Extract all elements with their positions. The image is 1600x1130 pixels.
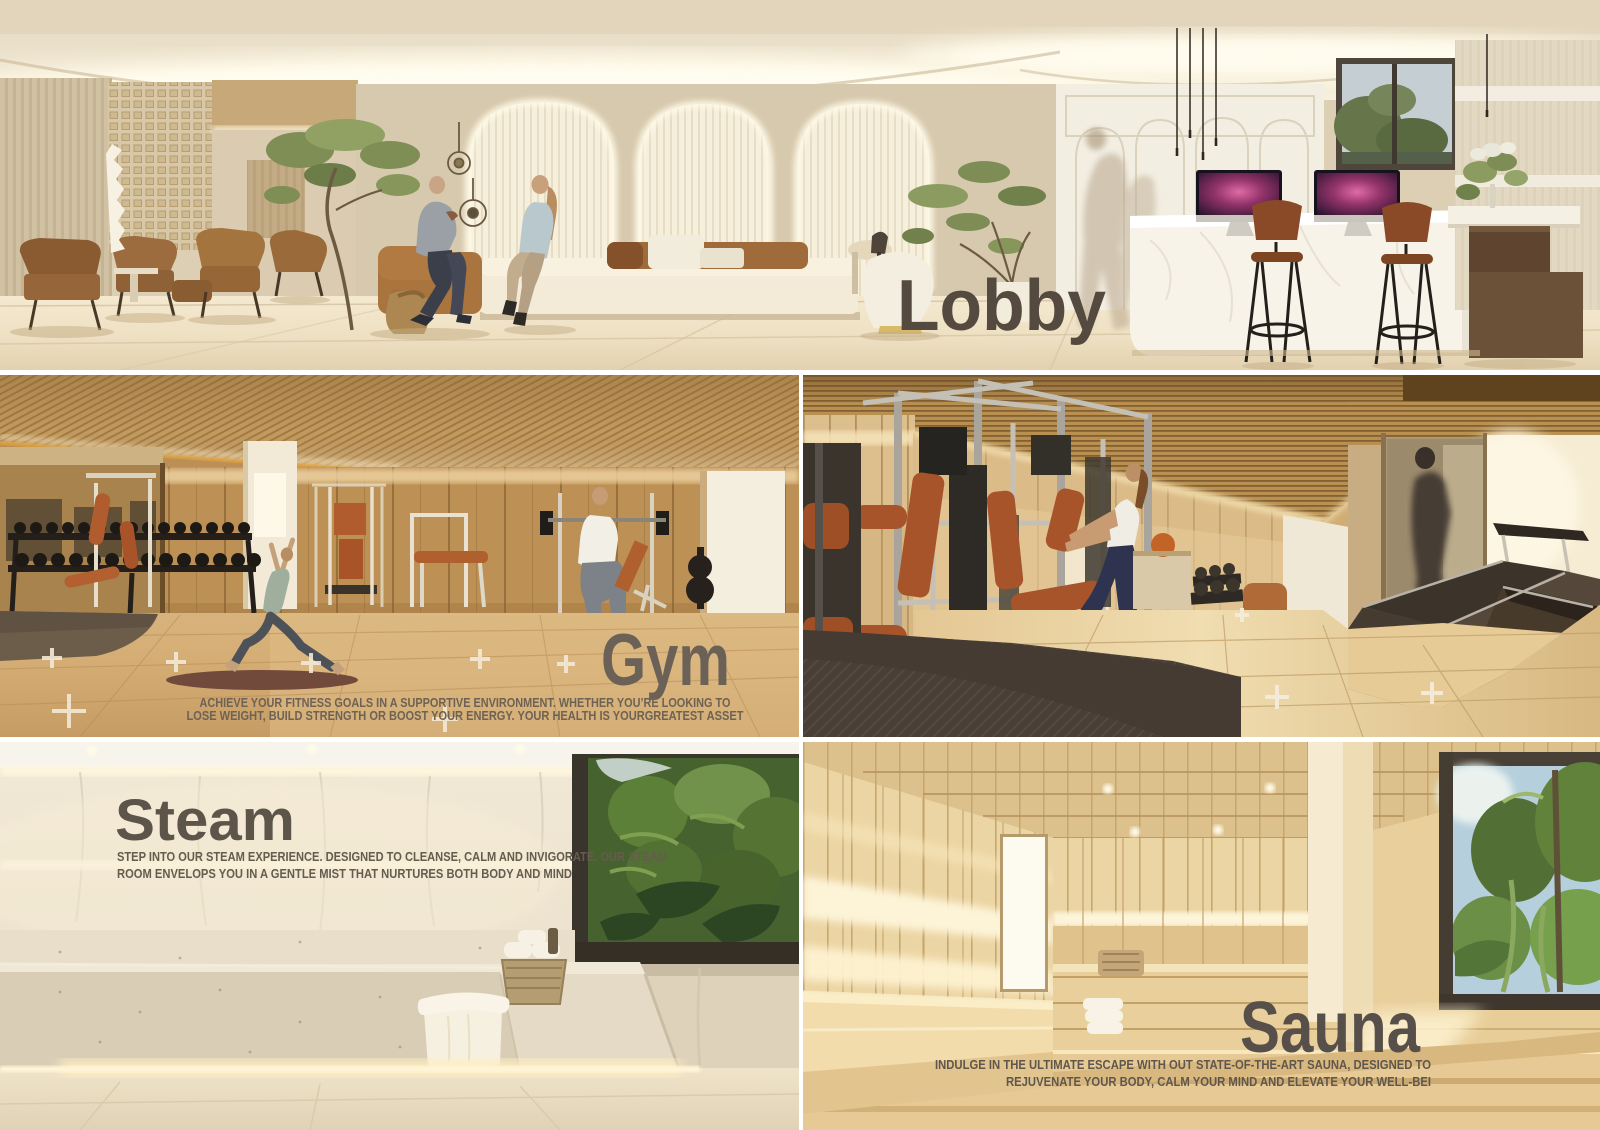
svg-text:STEP INTO OUR STEAM EXPERIENCE: STEP INTO OUR STEAM EXPERIENCE. DESIGNED… [117, 849, 667, 864]
svg-text:Sauna: Sauna [1240, 988, 1421, 1068]
svg-text:Lobby: Lobby [897, 266, 1106, 346]
svg-text:ROOM ENVELOPS YOU IN A GENTLE: ROOM ENVELOPS YOU IN A GENTLE MIST THAT … [117, 866, 572, 881]
svg-text:INDULGE IN THE ULTIMATE ESCAPE: INDULGE IN THE ULTIMATE ESCAPE WITH OUT … [935, 1057, 1431, 1072]
svg-text:REJUVENATE YOUR BODY, CALM YOU: REJUVENATE YOUR BODY, CALM YOUR MIND AND… [1006, 1074, 1431, 1089]
svg-text:Steam: Steam [115, 788, 295, 853]
svg-text:Gym: Gym [601, 620, 730, 701]
svg-text:LOSE WEIGHT, BUILD STRENGTH OR: LOSE WEIGHT, BUILD STRENGTH OR BOOST YOU… [187, 708, 744, 723]
